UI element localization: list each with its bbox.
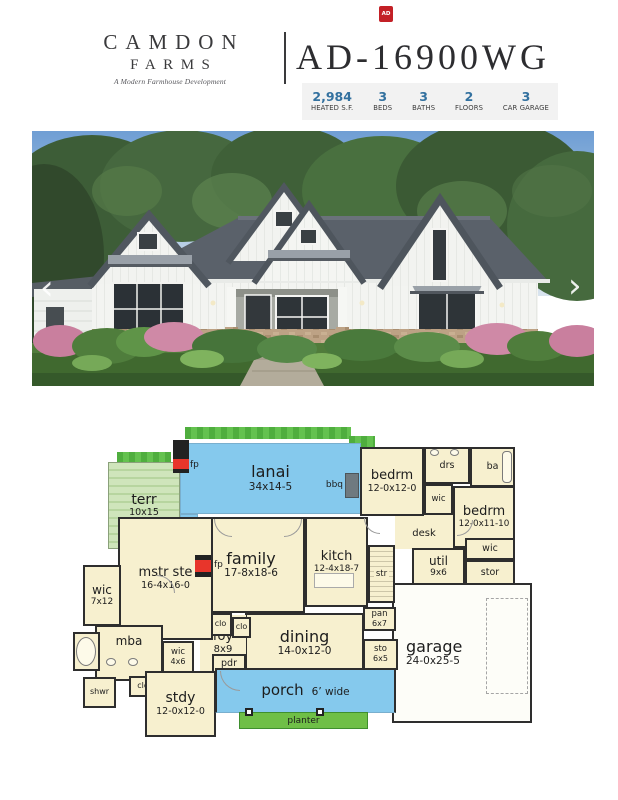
house-rendering: ‹ › — [32, 131, 594, 386]
sink-icon — [430, 449, 439, 456]
room-name-label: wic — [432, 495, 446, 504]
stairs: str — [368, 545, 395, 603]
stat-baths: 3 BATHS — [412, 90, 435, 112]
header-divider — [284, 32, 286, 84]
fireplace-label: fp — [214, 561, 223, 570]
room-name-label: ba — [487, 462, 499, 472]
stat-value: 2,984 — [311, 90, 353, 104]
fireplace-label: fp — [190, 461, 199, 470]
room-name-label: mba — [116, 635, 143, 648]
room-name-label: wic — [482, 544, 498, 554]
planter-strip: planter — [239, 712, 368, 729]
desk-label: desk — [404, 529, 444, 539]
room-name-label: sto — [374, 645, 387, 654]
brand-name-line2: FARMS — [103, 57, 246, 74]
sink-icon — [128, 658, 138, 666]
brand-tagline: A Modern Farmhouse Development — [95, 77, 245, 86]
room-name-label: drs — [440, 461, 455, 471]
room-dims-label: 6x5 — [373, 655, 388, 663]
porch-column-icon — [316, 708, 324, 716]
stats-bar: 2,984 HEATED S.F. 3 BEDS 3 BATHS 2 FLOOR… — [302, 83, 558, 120]
stat-beds: 3 BEDS — [373, 90, 392, 112]
room-name-label: terr — [131, 493, 156, 508]
planter-label: planter — [287, 716, 319, 726]
fireplace-icon — [173, 454, 189, 473]
bbq-grill-icon — [345, 473, 359, 498]
fireplace-icon — [195, 555, 211, 577]
room-name-label: porch — [261, 683, 303, 699]
room-dims-label: 24-0x25-5 — [406, 656, 460, 667]
room-dims-label: 14-0x12-0 — [278, 646, 332, 657]
kitchen-island — [314, 573, 354, 588]
room-name-label: kitch — [321, 550, 353, 564]
stat-value: 3 — [503, 90, 549, 104]
room-name-label: garage — [406, 639, 462, 656]
bathtub-icon — [502, 451, 512, 483]
brand-logo: CAMDON FARMS A Modern Farmhouse Developm… — [95, 30, 245, 86]
sink-icon — [450, 449, 459, 456]
room-dims-label: 6’ wide — [312, 687, 350, 698]
sink-icon — [106, 658, 116, 666]
room-name-label: family — [226, 551, 275, 568]
room-name-label: bedrm — [463, 505, 505, 519]
room-dims-label: 4x6 — [171, 658, 186, 666]
room-study: stdy 12-0x12-0 — [145, 671, 216, 737]
room-dims-label: 12-0x12-0 — [368, 484, 417, 494]
room-name-label: pan — [372, 610, 388, 619]
room-storage: stor — [465, 560, 515, 585]
plan-number: AD-16900WG — [296, 36, 576, 78]
room-name-label: wic — [92, 584, 112, 597]
stat-floors: 2 FLOORS — [455, 90, 483, 112]
hedge-top — [185, 427, 351, 439]
room-dims-label: 6x7 — [372, 620, 387, 628]
ad-logo-badge-icon[interactable]: AD — [379, 6, 393, 22]
room-dims-label: 17-8x18-6 — [224, 568, 278, 579]
stat-value: 3 — [412, 90, 435, 104]
stat-value: 3 — [373, 90, 392, 104]
room-bedroom-1: bedrm 12-0x12-0 — [360, 447, 424, 516]
plan-sheet: AD CAMDON FARMS A Modern Farmhouse Devel… — [0, 0, 618, 800]
room-name-label: dining — [280, 629, 329, 646]
tub-icon — [76, 637, 96, 666]
room-closet-2: clo — [232, 617, 251, 638]
room-name-label: util — [429, 555, 448, 568]
room-pantry: pan 6x7 — [363, 607, 396, 631]
room-dims-label: 12-0x12-0 — [156, 707, 205, 717]
stat-label: HEATED S.F. — [311, 105, 353, 113]
room-kitchen: kitch 12-4x18-7 — [305, 517, 368, 607]
room-name-label: stor — [481, 568, 499, 578]
room-lanai: lanai 34x14-5 — [180, 443, 361, 514]
brand-name-line1: CAMDON — [103, 30, 245, 55]
stairs-label: str — [374, 569, 389, 580]
fireplace-chimney-icon — [173, 440, 189, 454]
floor-plan: terr 10x15 lanai 34x14-5 fp bbq bedrm 12… — [62, 425, 544, 745]
room-name-label: bedrm — [371, 469, 413, 483]
room-name-label: clo — [236, 623, 248, 631]
room-utility: util 9x6 — [412, 548, 465, 585]
room-wic-master: wic 7x12 — [83, 565, 121, 626]
room-shower: shwr — [83, 677, 116, 708]
room-name-label: lanai — [251, 464, 290, 481]
stat-label: BATHS — [412, 105, 435, 113]
stat-heated-sf: 2,984 HEATED S.F. — [311, 90, 353, 112]
room-wic-small: wic 4x6 — [162, 641, 194, 673]
room-name-label: clo — [215, 620, 227, 628]
carousel-prev-icon[interactable]: ‹ — [40, 268, 54, 308]
stat-label: BEDS — [373, 105, 392, 113]
stat-label: CAR GARAGE — [503, 105, 549, 113]
stat-value: 2 — [455, 90, 483, 104]
room-dims-label: 9x6 — [430, 569, 447, 578]
stat-car-garage: 3 CAR GARAGE — [503, 90, 549, 112]
garage-bay-outline — [486, 598, 528, 694]
room-dining: dining 14-0x12-0 — [245, 613, 364, 673]
room-wic-a: wic — [424, 484, 453, 515]
room-dims-label: 34x14-5 — [249, 482, 292, 493]
room-dims-label: 7x12 — [91, 598, 114, 607]
room-name-label: stdy — [166, 691, 196, 706]
room-porch: porch 6’ wide — [215, 668, 396, 713]
stat-label: FLOORS — [455, 105, 483, 113]
porch-column-icon — [245, 708, 253, 716]
room-name-label: shwr — [90, 688, 109, 696]
house-rendering-photo: ‹ › — [32, 131, 594, 386]
bbq-label: bbq — [317, 481, 343, 490]
room-name-label: wic — [171, 648, 185, 657]
carousel-next-icon[interactable]: › — [568, 266, 582, 306]
room-wic-b: wic — [465, 538, 515, 560]
room-stowage: sto 6x5 — [363, 639, 398, 670]
